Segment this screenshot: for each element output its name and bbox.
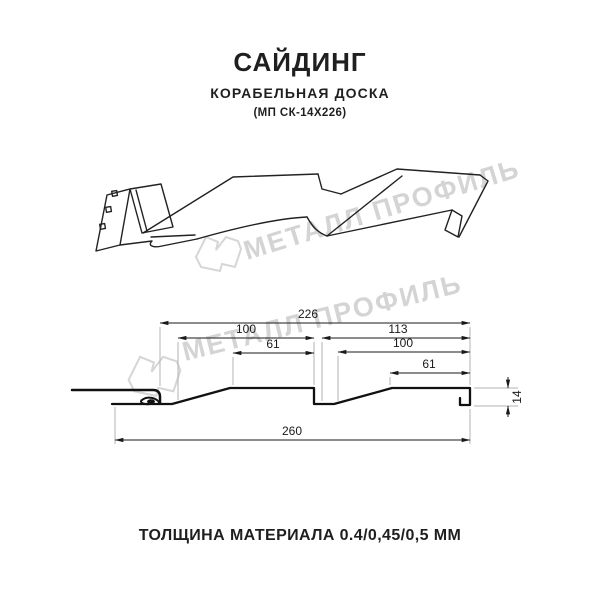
nail-strip (96, 189, 130, 251)
brand-watermark-lower: МЕТАЛЛ ПРОФИЛЬ (129, 268, 466, 396)
dimension-label-113: 113 (388, 322, 407, 336)
perforation-hole (106, 207, 112, 213)
metall-profil-logo-icon (196, 237, 241, 271)
technical-drawing: МЕТАЛЛ ПРОФИЛЬ МЕТАЛЛ ПРОФИЛЬ (0, 0, 600, 600)
dimensions (115, 323, 508, 440)
watermark-brand-text: МЕТАЛЛ ПРОФИЛЬ (240, 153, 524, 266)
cross-section-view (72, 388, 470, 405)
page-root: САЙДИНГ КОРАБЕЛЬНАЯ ДОСКА (МП СК-14Х226)… (0, 0, 600, 600)
dimension-label-61-right: 61 (422, 357, 436, 371)
thickness-note: ТОЛЩИНА МАТЕРИАЛА 0.4/0,45/0,5 ММ (0, 527, 600, 545)
dimension-label-226: 226 (298, 307, 318, 321)
left-hem-line (151, 235, 195, 237)
left-hem-curl (120, 239, 197, 247)
dimension-label-100-right: 100 (393, 336, 413, 350)
lock-channel-fold (136, 190, 147, 231)
step-top (318, 174, 341, 194)
dimension-label-14: 14 (510, 390, 524, 404)
dimension-label-61-left: 61 (266, 337, 280, 351)
dimension-label-100-left: 100 (236, 322, 256, 336)
dimension-label-260: 260 (282, 424, 302, 438)
brand-watermark-upper: МЕТАЛЛ ПРОФИЛЬ (196, 153, 524, 271)
adjacent-panel-edge (72, 390, 160, 403)
perforation-hole (100, 224, 106, 230)
right-hem-face (445, 210, 462, 237)
